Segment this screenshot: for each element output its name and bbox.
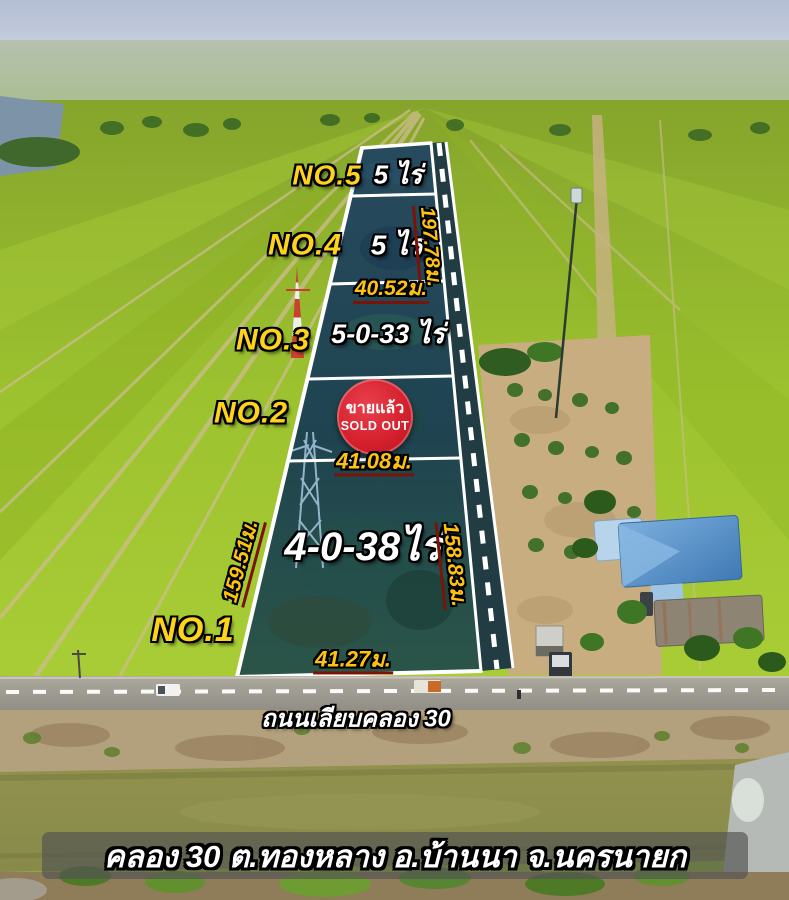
sold-out-english-text: SOLD OUT (341, 419, 410, 434)
aerial-land-listing: NO.5 5 ไร่ NO.4 5 ไร่ 197.78ม. 40.52ม. N… (0, 0, 789, 900)
sold-out-badge: ขายแล้ว SOLD OUT (337, 379, 413, 455)
measurement-road-frontage: 41.27ม. (313, 647, 393, 674)
road-name-label: ถนนเลียบคลอง 30 (261, 706, 451, 731)
plot1-size: 4-0-38ไร่ (284, 526, 441, 568)
plot3-size: 5-0-33 ไร่ (331, 320, 445, 348)
plot5-size: 5 ไร่ (374, 161, 423, 188)
plot2-number: NO.2 (214, 397, 288, 429)
plot5-number: NO.5 (292, 160, 361, 189)
measurement-no4-no3: 40.52ม. (353, 278, 429, 304)
location-banner-text: คลอง 30 ต.ทองหลาง อ.บ้านนา จ.นครนายก (104, 831, 686, 881)
sold-out-thai-text: ขายแล้ว (346, 400, 404, 418)
location-banner: คลอง 30 ต.ทองหลาง อ.บ้านนา จ.นครนายก (42, 832, 748, 879)
plot3-number: NO.3 (236, 324, 310, 356)
plot4-number: NO.4 (268, 229, 342, 261)
measurement-no2-no1: 41.08ม. (334, 449, 414, 476)
plot1-number: NO.1 (151, 613, 234, 649)
